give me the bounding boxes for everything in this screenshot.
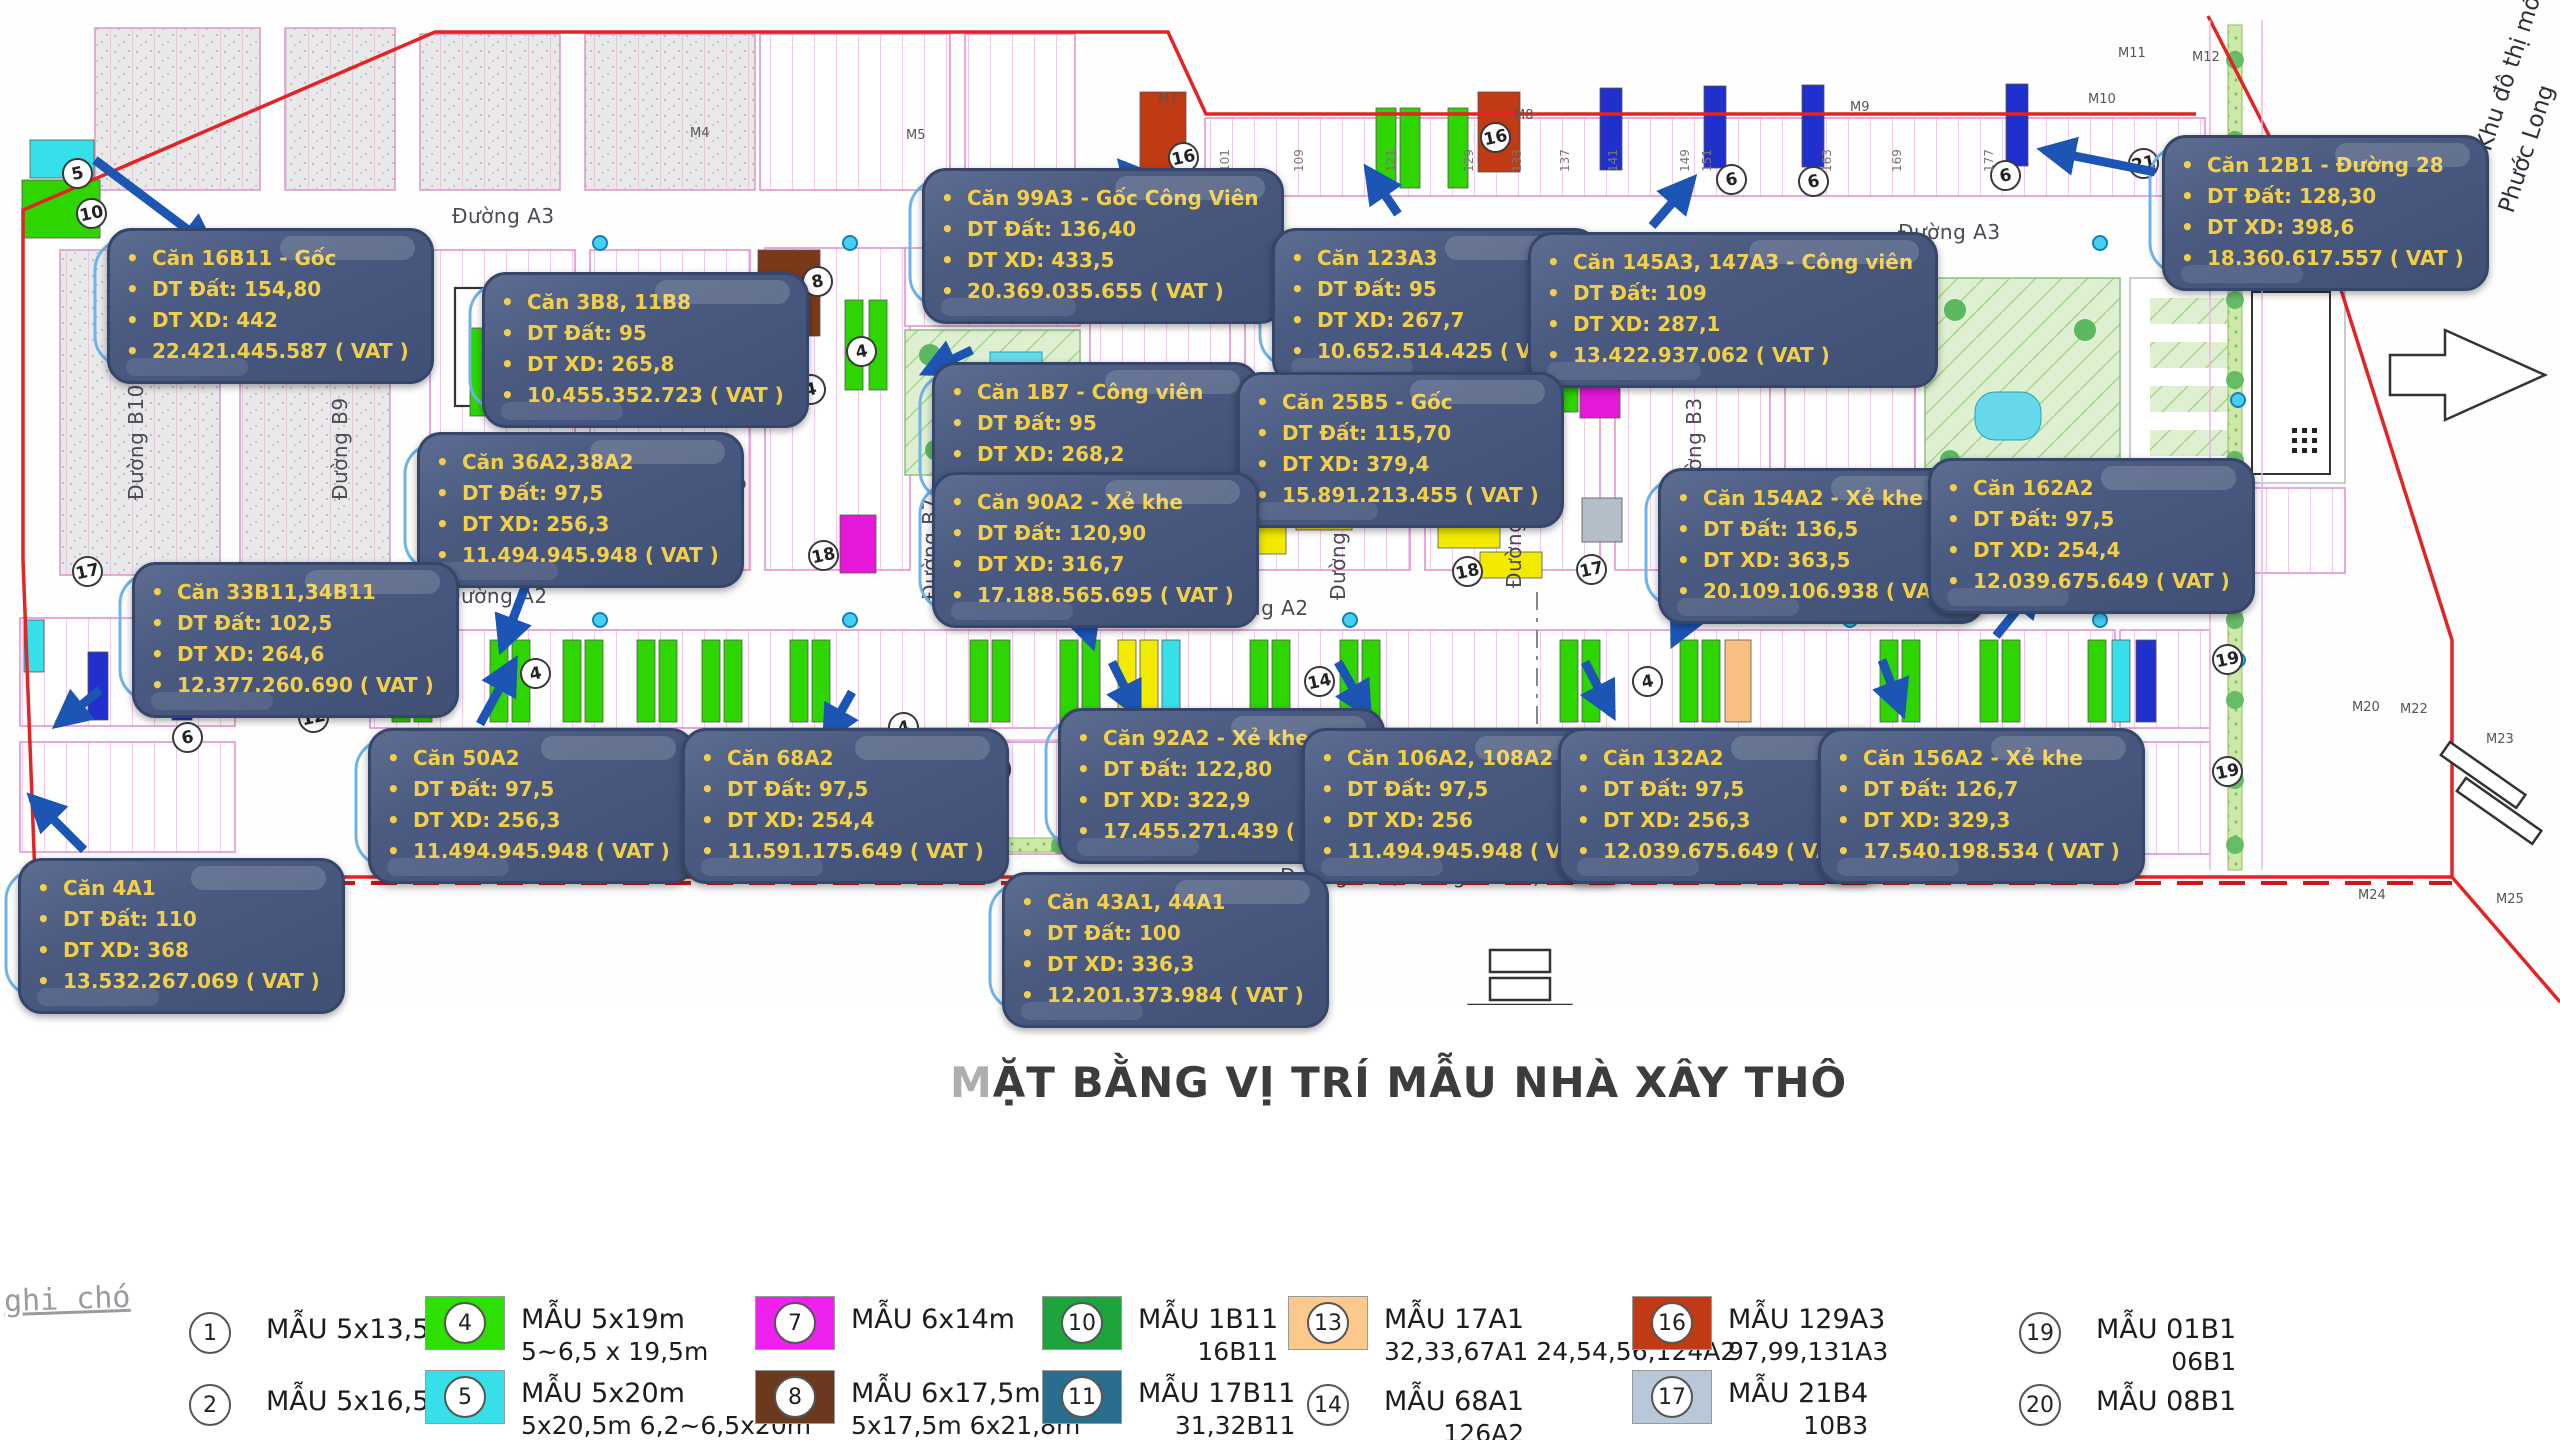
bullet-icon: • [1321,743,1347,774]
callout-land-area: •DT Đất: 120,90 [951,518,1234,549]
survey-marker-label: M5 [906,128,926,143]
callout-price: •17.540.198.534 ( VAT ) [1837,836,2120,867]
bullet-icon: • [1577,805,1603,836]
callout-land-area-text: DT Đất: 128,30 [2207,181,2376,212]
callout-land-area-text: DT Đất: 136,40 [967,214,1136,245]
bullet-icon: • [951,377,977,408]
model-number-badge: 10 [73,195,110,232]
legend-item-7: 7 MẪU 6x14m [755,1296,1015,1350]
legend-item-10: 10 MẪU 1B1116B11 [1042,1296,1278,1366]
callout-price: •20.109.106.938 ( VAT ) [1677,576,1960,607]
bullet-icon: • [1837,774,1863,805]
bullet-icon: • [387,774,413,805]
callout-c-n-4a1: •Căn 4A1•DT Đất: 110•DT XD: 368•13.532.2… [18,858,345,1014]
bullet-icon: • [951,580,977,611]
callout-land-area-text: DT Đất: 102,5 [177,608,332,639]
callout-land-area-text: DT Đất: 115,70 [1282,418,1451,449]
callout-price-text: 12.039.675.649 ( VAT ) [1973,566,2230,597]
callout-name: •Căn 162A2 [1947,473,2230,504]
legend-item-14: 14 MẪU 68A1126A2 [1288,1378,1524,1440]
bullet-icon: • [387,743,413,774]
bullet-icon: • [1077,723,1103,754]
callout-build-area: •DT XD: 336,3 [1021,949,1304,980]
callout-build-area: •DT XD: 433,5 [941,245,1259,276]
legend-item-1: 1 MẪU 5x13,5m [170,1306,456,1360]
callout-name-text: Căn 154A2 - Xẻ khe [1703,483,1923,514]
bullet-icon: • [436,509,462,540]
bullet-icon: • [37,904,63,935]
callout-name: •Căn 16B11 - Gốc [126,243,409,274]
callout-c-n-36a2-38a2: •Căn 36A2,38A2•DT Đất: 97,5•DT XD: 256,3… [417,432,744,588]
callout-name: •Căn 145A3, 147A3 - Công viên [1547,247,1913,278]
legend-swatch: 17 [1632,1370,1712,1424]
callout-land-area: •DT Đất: 97,5 [701,774,984,805]
callout-build-area: •DT XD: 316,7 [951,549,1234,580]
model-number-badge: 19 [2209,641,2246,678]
callout-land-area-text: DT Đất: 97,5 [413,774,554,805]
bullet-icon: • [1577,743,1603,774]
bullet-icon: • [1291,336,1317,367]
callout-land-area-text: DT Đất: 126,7 [1863,774,2018,805]
callout-price: •12.039.675.649 ( VAT ) [1947,566,2230,597]
bullet-icon: • [1291,243,1317,274]
bullet-icon: • [1947,566,1973,597]
callout-land-area: •DT Đất: 97,5 [436,478,719,509]
callout-name: •Căn 4A1 [37,873,320,904]
legend-swatch: 2 [170,1378,250,1432]
bullet-icon: • [1291,305,1317,336]
legend-swatch: 13 [1288,1296,1368,1350]
bullet-icon: • [951,408,977,439]
callout-land-area-text: DT Đất: 136,5 [1703,514,1858,545]
legend-swatch: 5 [425,1370,505,1424]
callout-build-area-text: DT XD: 256,3 [1603,805,1750,836]
callout-build-area-text: DT XD: 379,4 [1282,449,1429,480]
callout-land-area: •DT Đất: 126,7 [1837,774,2120,805]
callout-c-n-12b1-ng-28: •Căn 12B1 - Đường 28•DT Đất: 128,30•DT X… [2162,135,2489,291]
callout-build-area-text: DT XD: 322,9 [1103,785,1250,816]
callout-price: •10.455.352.723 ( VAT ) [501,380,784,411]
lot-number: 169 [1890,149,1904,172]
bullet-icon: • [1947,473,1973,504]
callout-build-area-text: DT XD: 254,4 [727,805,874,836]
bullet-icon: • [2181,150,2207,181]
callout-name: •Căn 12B1 - Đường 28 [2181,150,2464,181]
model-number-badge: 4 [517,655,554,692]
bullet-icon: • [1321,774,1347,805]
bullet-icon: • [1256,387,1282,418]
callout-price-text: 20.369.035.655 ( VAT ) [967,276,1224,307]
survey-marker-label: M24 [2358,888,2386,903]
callout-land-area-text: DT Đất: 97,5 [462,478,603,509]
bullet-icon: • [126,305,152,336]
callout-name-text: Căn 1B7 - Công viên [977,377,1203,408]
callout-land-area: •DT Đất: 136,40 [941,214,1259,245]
bullet-icon: • [1677,545,1703,576]
callout-land-area-text: DT Đất: 97,5 [1603,774,1744,805]
bullet-icon: • [151,670,177,701]
lot-number: 163 [1820,149,1834,172]
page-title: MẶT BẰNG VỊ TRÍ MẪU NHÀ XÂY THÔ [950,1058,1847,1107]
bullet-icon: • [2181,243,2207,274]
legend-swatch: 11 [1042,1370,1122,1424]
callout-price-text: 11.591.175.649 ( VAT ) [727,836,984,867]
bullet-icon: • [436,478,462,509]
callout-land-area: •DT Đất: 95 [951,408,1234,439]
callout-c-n-99a3-g-c-c-ng-vi-n: •Căn 99A3 - Gốc Công Viên•DT Đất: 136,40… [922,168,1284,324]
callout-build-area-text: DT XD: 316,7 [977,549,1124,580]
bullet-icon: • [951,518,977,549]
callout-build-area-text: DT XD: 256,3 [462,509,609,540]
callout-name-text: Căn 90A2 - Xẻ khe [977,487,1183,518]
bullet-icon: • [1837,836,1863,867]
callout-price-text: 12.201.373.984 ( VAT ) [1047,980,1304,1011]
callout-build-area-text: DT XD: 268,2 [977,439,1124,470]
callout-name-text: Căn 123A3 [1317,243,1438,274]
callout-name: •Căn 1B7 - Công viên [951,377,1234,408]
survey-marker-label: M20 [2352,700,2380,715]
callout-build-area: •DT XD: 264,6 [151,639,434,670]
callout-name-text: Căn 92A2 - Xẻ khe [1103,723,1309,754]
legend-swatch: 1 [170,1306,250,1360]
callout-land-area: •DT Đất: 97,5 [1947,504,2230,535]
lot-number: 133 [1510,149,1524,172]
callout-price-text: 11.494.945.948 ( VAT ) [462,540,719,571]
survey-marker-label: M23 [2486,732,2514,747]
callout-land-area: •DT Đất: 136,5 [1677,514,1960,545]
callout-build-area-text: DT XD: 398,6 [2207,212,2354,243]
callout-build-area: •DT XD: 256,3 [436,509,719,540]
bullet-icon: • [1547,278,1573,309]
legend-swatch: 20 [2000,1378,2080,1432]
callout-name: •Căn 25B5 - Gốc [1256,387,1539,418]
model-number-badge: 6 [1713,161,1750,198]
legend-swatch: 16 [1632,1296,1712,1350]
callout-c-n-68a2: •Căn 68A2•DT Đất: 97,5•DT XD: 254,4•11.5… [682,728,1009,884]
road-label: Đường A3 [452,204,555,228]
bullet-icon: • [1256,418,1282,449]
bullet-icon: • [941,183,967,214]
callout-name-text: Căn 145A3, 147A3 - Công viên [1573,247,1913,278]
bullet-icon: • [151,639,177,670]
callout-price-text: 13.532.267.069 ( VAT ) [63,966,320,997]
callout-price: •11.494.945.948 ( VAT ) [436,540,719,571]
callout-land-area: •DT Đất: 100 [1021,918,1304,949]
bullet-icon: • [1256,480,1282,511]
callout-land-area: •DT Đất: 154,80 [126,274,409,305]
callout-name-text: Căn 132A2 [1603,743,1724,774]
survey-marker-label: M25 [2496,892,2524,907]
survey-marker-label: M7 [1158,92,1178,107]
callout-build-area-text: DT XD: 336,3 [1047,949,1194,980]
callout-land-area-text: DT Đất: 95 [977,408,1097,439]
bullet-icon: • [1947,535,1973,566]
bullet-icon: • [1547,340,1573,371]
callout-build-area: •DT XD: 368 [37,935,320,966]
survey-marker-label: M12 [2192,50,2220,65]
bullet-icon: • [1677,483,1703,514]
callout-build-area-text: DT XD: 265,8 [527,349,674,380]
callout-name-text: Căn 68A2 [727,743,834,774]
callout-name: •Căn 50A2 [387,743,670,774]
survey-marker-label: M22 [2400,702,2428,717]
bullet-icon: • [1947,504,1973,535]
callout-price: •12.377.260.690 ( VAT ) [151,670,434,701]
survey-marker-label: M4 [690,126,710,141]
callout-price: •13.422.937.062 ( VAT ) [1547,340,1913,371]
legend-swatch: 4 [425,1296,505,1350]
callout-land-area-text: DT Đất: 122,80 [1103,754,1272,785]
bullet-icon: • [1547,309,1573,340]
callout-name: •Căn 99A3 - Gốc Công Viên [941,183,1259,214]
bullet-icon: • [1256,449,1282,480]
callout-price-text: 18.360.617.557 ( VAT ) [2207,243,2464,274]
bullet-icon: • [701,805,727,836]
callout-name-text: Căn 156A2 - Xẻ khe [1863,743,2083,774]
callout-land-area-text: DT Đất: 95 [527,318,647,349]
callout-price-text: 17.188.565.695 ( VAT ) [977,580,1234,611]
bullet-icon: • [1021,980,1047,1011]
bullet-icon: • [387,836,413,867]
bullet-icon: • [1547,247,1573,278]
note-label: ghi chó [3,1280,131,1319]
bullet-icon: • [701,743,727,774]
callout-name: •Căn 90A2 - Xẻ khe [951,487,1234,518]
callout-price-text: 13.422.937.062 ( VAT ) [1573,340,1830,371]
bullet-icon: • [1077,754,1103,785]
survey-marker-label: M10 [2088,92,2116,107]
callout-name-text: Căn 12B1 - Đường 28 [2207,150,2444,181]
callout-build-area-text: DT XD: 433,5 [967,245,1114,276]
callout-c-n-43a1-44a1: •Căn 43A1, 44A1•DT Đất: 100•DT XD: 336,3… [1002,872,1329,1028]
callout-build-area: •DT XD: 254,4 [1947,535,2230,566]
callout-build-area: •DT XD: 379,4 [1256,449,1539,480]
callout-land-area: •DT Đất: 110 [37,904,320,935]
model-number-badge: 16 [1477,119,1514,156]
callout-build-area-text: DT XD: 264,6 [177,639,324,670]
legend-item-16: 16 MẪU 129A397,99,131A3 [1632,1296,1888,1366]
callout-build-area: •DT XD: 398,6 [2181,212,2464,243]
callout-name-text: Căn 106A2, 108A2 [1347,743,1553,774]
callout-land-area-text: DT Đất: 109 [1573,278,1707,309]
callout-build-area: •DT XD: 268,2 [951,439,1234,470]
legend-item-20: 20 MẪU 08B1 [2000,1378,2236,1432]
bullet-icon: • [37,935,63,966]
callout-c-n-90a2-x-khe: •Căn 90A2 - Xẻ khe•DT Đất: 120,90•DT XD:… [932,472,1259,628]
callout-build-area: •DT XD: 256,3 [387,805,670,836]
callout-build-area-text: DT XD: 254,4 [1973,535,2120,566]
survey-marker-label: M8 [1514,108,1534,123]
legend-item-4: 4 MẪU 5x19m5~6,5 x 19,5m [425,1296,708,1366]
lot-number: 129 [1462,149,1476,172]
callout-c-n-33b11-34b11: •Căn 33B11,34B11•DT Đất: 102,5•DT XD: 26… [132,562,459,718]
title-text: ẶT BẰNG VỊ TRÍ MẪU NHÀ XÂY THÔ [993,1058,1847,1107]
callout-price: •20.369.035.655 ( VAT ) [941,276,1259,307]
bullet-icon: • [151,577,177,608]
callout-build-area-text: DT XD: 256 [1347,805,1473,836]
callout-build-area-text: DT XD: 287,1 [1573,309,1720,340]
bullet-icon: • [501,349,527,380]
callout-name-text: Căn 4A1 [63,873,156,904]
callout-name-text: Căn 36A2,38A2 [462,447,633,478]
bullet-icon: • [1077,785,1103,816]
bullet-icon: • [37,873,63,904]
bullet-icon: • [1021,887,1047,918]
bullet-icon: • [2181,212,2207,243]
model-number-badge: 18 [1449,553,1486,590]
callout-build-area: •DT XD: 254,4 [701,805,984,836]
bullet-icon: • [126,274,152,305]
callout-name: •Căn 3B8, 11B8 [501,287,784,318]
bullet-icon: • [951,439,977,470]
bullet-icon: • [701,836,727,867]
bullet-icon: • [1021,949,1047,980]
survey-marker-label: M9 [1850,100,1870,115]
callout-c-n-156a2-x-khe: •Căn 156A2 - Xẻ khe•DT Đất: 126,7•DT XD:… [1818,728,2145,884]
road-label: Đường B9 [328,397,352,500]
model-number-badge: 21 [2125,145,2162,182]
callout-land-area-text: DT Đất: 95 [1317,274,1437,305]
callout-land-area-text: DT Đất: 154,80 [152,274,321,305]
model-number-badge: 5 [59,155,96,192]
model-number-badge: 17 [69,553,106,590]
callout-price: •15.891.213.455 ( VAT ) [1256,480,1539,511]
callout-land-area-text: DT Đất: 97,5 [1973,504,2114,535]
callout-name-text: Căn 50A2 [413,743,520,774]
callout-price-text: 11.494.945.948 ( VAT ) [413,836,670,867]
callout-name: •Căn 36A2,38A2 [436,447,719,478]
bullet-icon: • [1291,274,1317,305]
callout-build-area: •DT XD: 442 [126,305,409,336]
bullet-icon: • [1677,576,1703,607]
callout-build-area-text: DT XD: 368 [63,935,189,966]
bullet-icon: • [126,336,152,367]
legend-item-17: 17 MẪU 21B410B3 [1632,1370,1868,1440]
callout-build-area-text: DT XD: 267,7 [1317,305,1464,336]
bullet-icon: • [1677,514,1703,545]
bullet-icon: • [1577,774,1603,805]
legend-swatch: 10 [1042,1296,1122,1350]
callout-name-text: Căn 16B11 - Gốc [152,243,337,274]
callout-price-text: 20.109.106.938 ( VAT ) [1703,576,1960,607]
model-number-badge: 19 [2209,753,2246,790]
callout-build-area: •DT XD: 287,1 [1547,309,1913,340]
legend-swatch: 19 [2000,1306,2080,1360]
bullet-icon: • [941,214,967,245]
callout-c-n-145a3-147a3-c-ng-vi-n: •Căn 145A3, 147A3 - Công viên•DT Đất: 10… [1528,232,1938,388]
callout-land-area: •DT Đất: 128,30 [2181,181,2464,212]
callout-price-text: 22.421.445.587 ( VAT ) [152,336,409,367]
model-number-badge: 6 [169,719,206,756]
callout-name: •Căn 33B11,34B11 [151,577,434,608]
lot-number: 177 [1982,149,1996,172]
callout-price: •11.494.945.948 ( VAT ) [387,836,670,867]
callout-name: •Căn 156A2 - Xẻ khe [1837,743,2120,774]
lot-number: 149 [1678,149,1692,172]
legend-swatch: 7 [755,1296,835,1350]
bullet-icon: • [941,245,967,276]
bullet-icon: • [1321,836,1347,867]
legend-item-2: 2 MẪU 5x16,5m [170,1378,456,1432]
callout-name: •Căn 43A1, 44A1 [1021,887,1304,918]
callout-build-area-text: DT XD: 329,3 [1863,805,2010,836]
bullet-icon: • [37,966,63,997]
callout-land-area: •DT Đất: 109 [1547,278,1913,309]
callout-price: •12.201.373.984 ( VAT ) [1021,980,1304,1011]
callout-land-area-text: DT Đất: 97,5 [1347,774,1488,805]
callout-price: •22.421.445.587 ( VAT ) [126,336,409,367]
callout-price-text: 10.455.352.723 ( VAT ) [527,380,784,411]
callout-land-area: •DT Đất: 97,5 [387,774,670,805]
bullet-icon: • [1021,918,1047,949]
callout-name: •Căn 68A2 [701,743,984,774]
bullet-icon: • [1321,805,1347,836]
callout-land-area-text: DT Đất: 110 [63,904,197,935]
callout-price: •11.591.175.649 ( VAT ) [701,836,984,867]
bullet-icon: • [501,287,527,318]
bullet-icon: • [501,318,527,349]
lot-number: 141 [1606,149,1620,172]
callout-c-n-25b5-g-c: •Căn 25B5 - Gốc•DT Đất: 115,70•DT XD: 37… [1237,372,1564,528]
callout-c-n-162a2: •Căn 162A2•DT Đất: 97,5•DT XD: 254,4•12.… [1928,458,2255,614]
legend-item-19: 19 MẪU 01B106B1 [2000,1306,2236,1376]
survey-marker-label: M11 [2118,46,2146,61]
model-number-badge: 18 [805,537,842,574]
callout-price: •18.360.617.557 ( VAT ) [2181,243,2464,274]
callout-name-text: Căn 3B8, 11B8 [527,287,691,318]
callout-land-area: •DT Đất: 115,70 [1256,418,1539,449]
bullet-icon: • [701,774,727,805]
model-number-badge: 4 [843,333,880,370]
bullet-icon: • [951,487,977,518]
bullet-icon: • [501,380,527,411]
bullet-icon: • [1577,836,1603,867]
legend-item-5: 5 MẪU 5x20m5x20,5m 6,2~6,5x20m [425,1370,811,1440]
callout-price-text: 15.891.213.455 ( VAT ) [1282,480,1539,511]
callout-name-text: Căn 162A2 [1973,473,2094,504]
callout-land-area: •DT Đất: 95 [501,318,784,349]
title-lead-letter: M [950,1058,993,1107]
bullet-icon: • [951,549,977,580]
callout-price-text: 12.377.260.690 ( VAT ) [177,670,434,701]
callout-name: •Căn 154A2 - Xẻ khe [1677,483,1960,514]
road-label: Đường B10 [124,384,148,500]
model-number-badge: 17 [1573,551,1610,588]
callout-build-area-text: DT XD: 256,3 [413,805,560,836]
bullet-icon: • [1077,816,1103,847]
bullet-icon: • [941,276,967,307]
bullet-icon: • [151,608,177,639]
model-number-badge: 14 [1301,663,1338,700]
callout-price-text: 17.540.198.534 ( VAT ) [1863,836,2120,867]
site-plan-page: Đường A3Đường A3Đường A2Đường A2Đường A2… [0,0,2560,1440]
callout-c-n-16b11-g-c: •Căn 16B11 - Gốc•DT Đất: 154,80•DT XD: 4… [107,228,434,384]
callout-name-text: Căn 43A1, 44A1 [1047,887,1225,918]
bullet-icon: • [436,447,462,478]
model-number-badge: 4 [1629,663,1666,700]
bullet-icon: • [1837,743,1863,774]
callout-price: •13.532.267.069 ( VAT ) [37,966,320,997]
bullet-icon: • [2181,181,2207,212]
callout-build-area: •DT XD: 329,3 [1837,805,2120,836]
legend-item-8: 8 MẪU 6x17,5m5x17,5m 6x21,8m [755,1370,1080,1440]
lot-number: 109 [1292,149,1306,172]
legend-swatch: 8 [755,1370,835,1424]
bullet-icon: • [1837,805,1863,836]
callout-c-n-50a2: •Căn 50A2•DT Đất: 97,5•DT XD: 256,3•11.4… [368,728,695,884]
lot-number: 151 [1700,149,1714,172]
callout-price: •17.188.565.695 ( VAT ) [951,580,1234,611]
